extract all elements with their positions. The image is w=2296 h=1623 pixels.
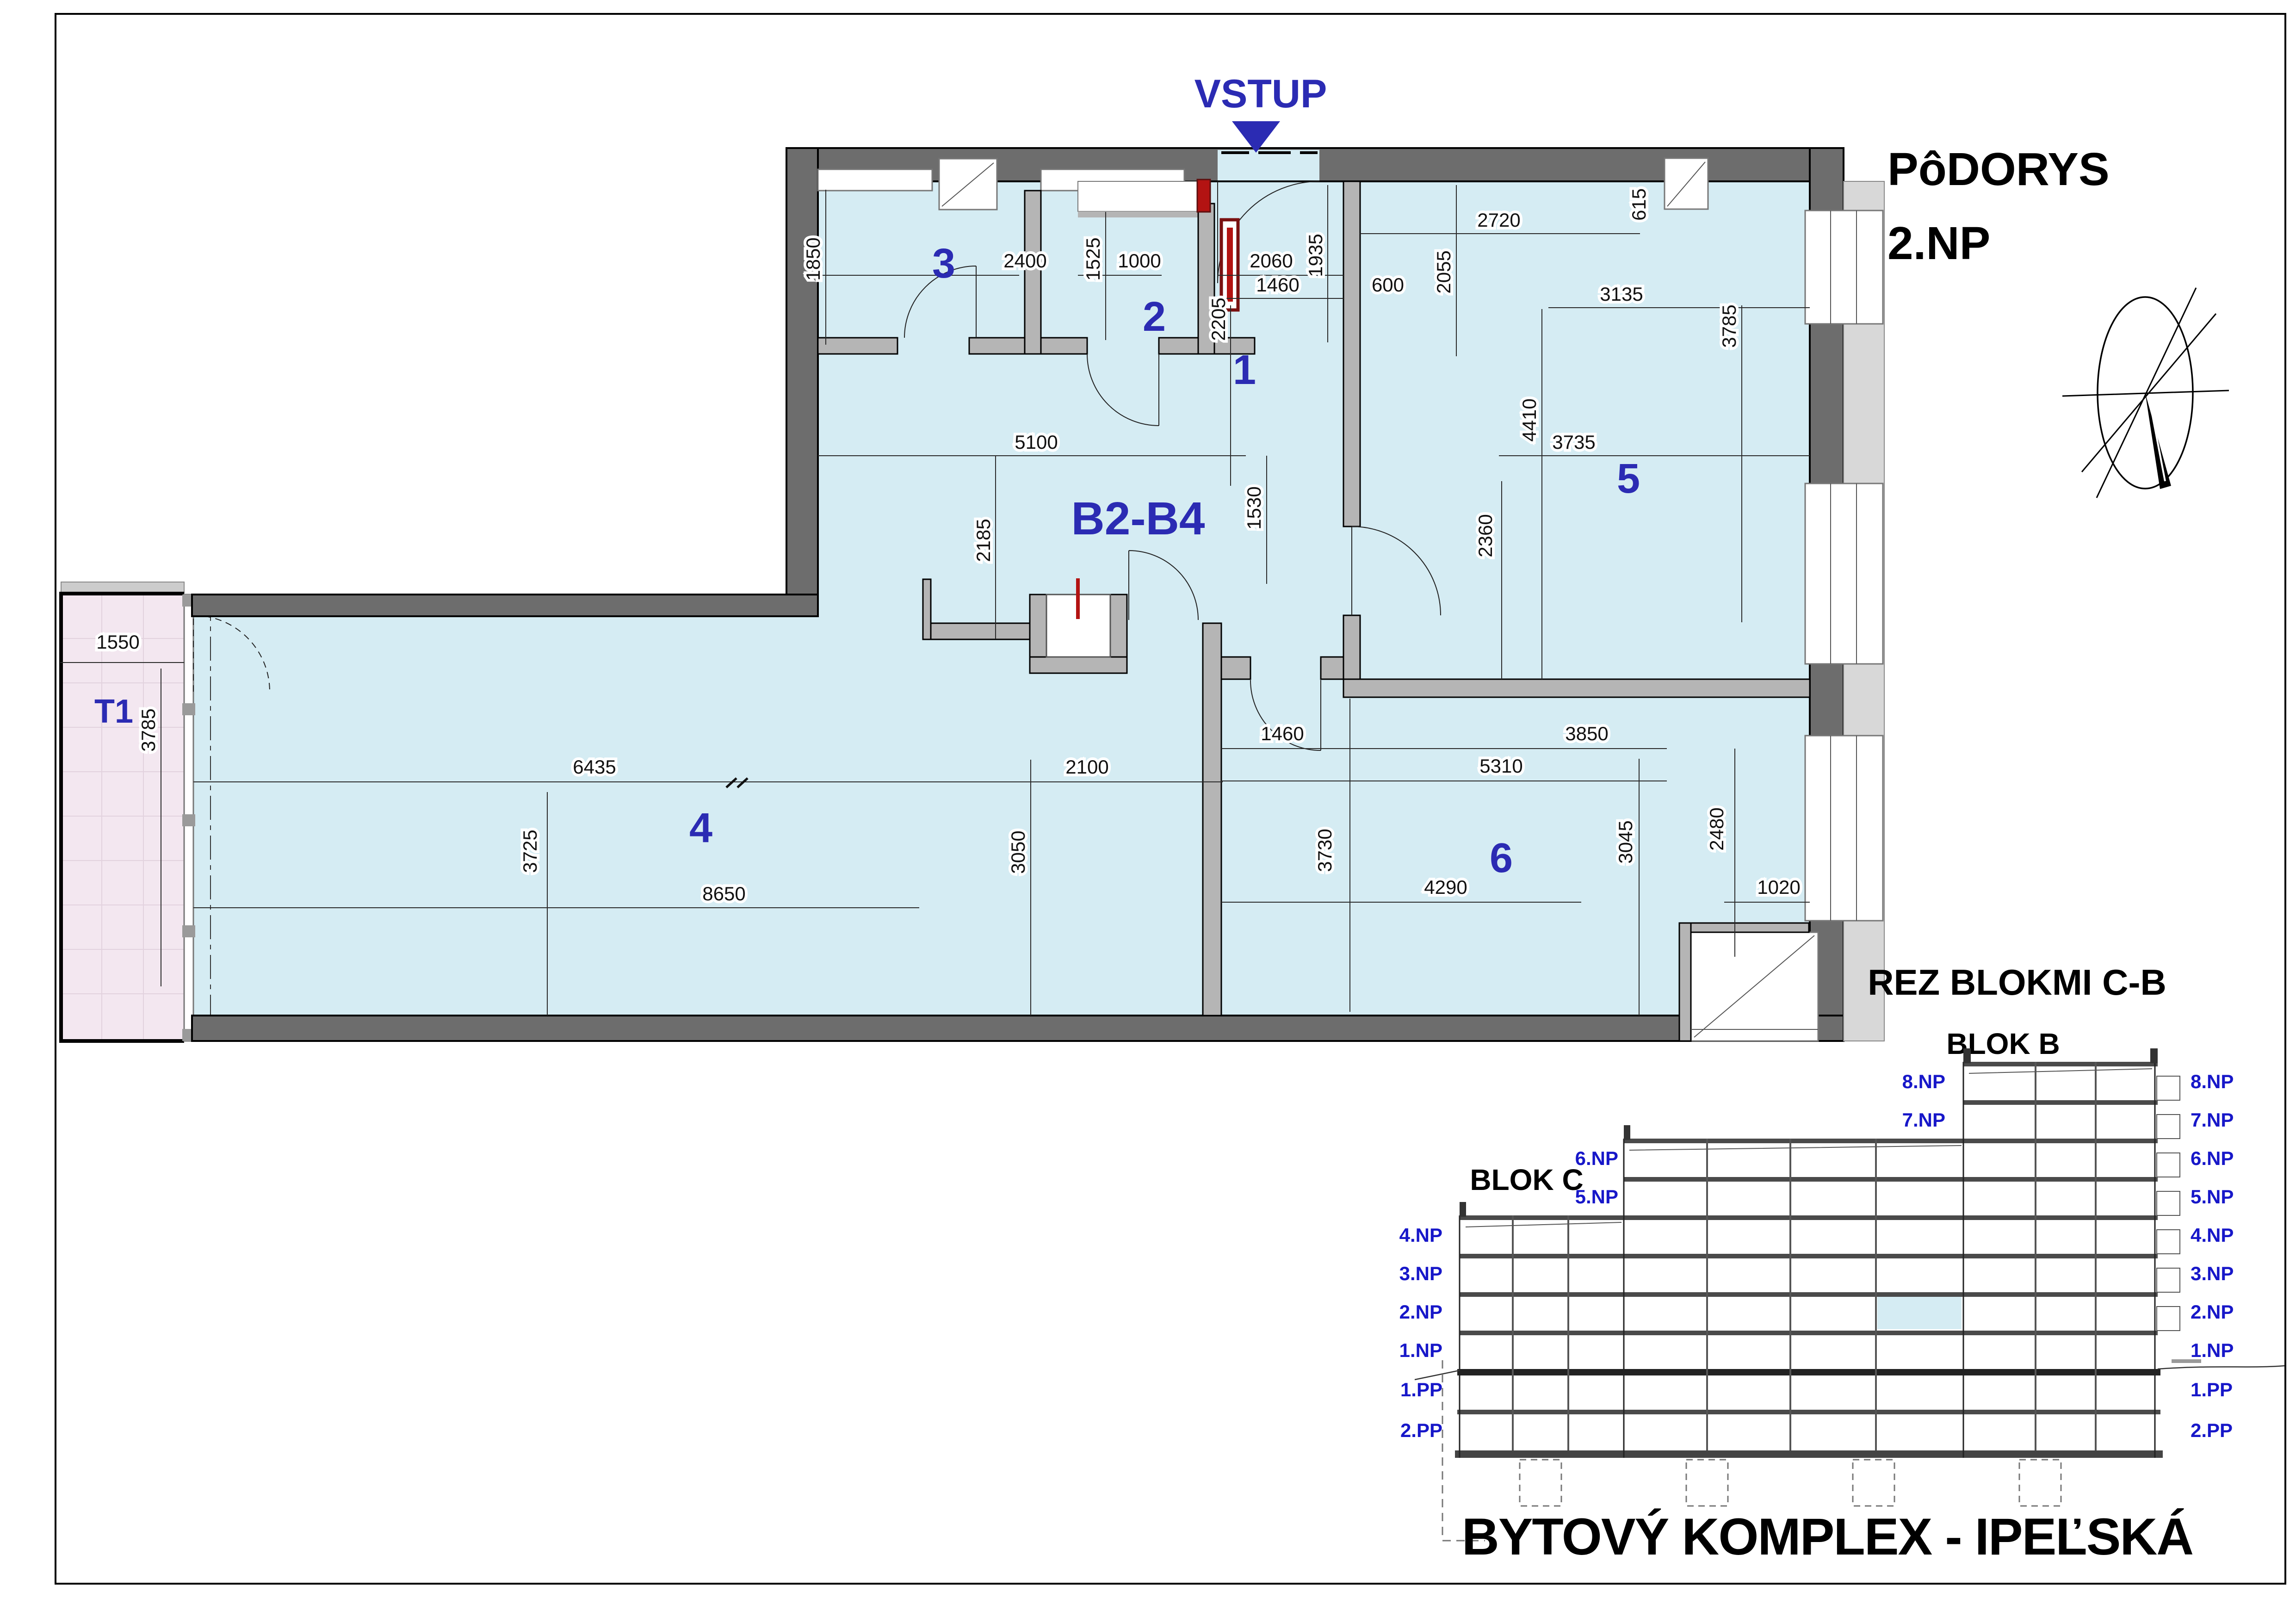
loggia [1679, 923, 1818, 1041]
floor-label-right: 4.NP [2191, 1224, 2234, 1246]
floor-label-blok-b-left: 7.NP [1902, 1109, 1945, 1131]
dimension-label: 1020 [1757, 876, 1800, 898]
drawing-canvas: VSTUP B2-B4 T1 123456 185024001525100020… [0, 0, 2296, 1623]
wc-niche [1078, 181, 1198, 217]
room-number: 5 [1617, 456, 1640, 502]
unit-label: B2-B4 [1071, 493, 1205, 545]
title-line1: PôDORYS [1888, 143, 2110, 195]
room5-south-wall [1343, 679, 1810, 697]
dimension-label: 3050 [1007, 830, 1029, 873]
dimension-label: 3735 [1552, 431, 1595, 453]
section-title: REZ BLOKMI C-B [1868, 962, 2166, 1003]
dimension-label: 2720 [1477, 209, 1520, 231]
dimension-label: 4290 [1424, 876, 1467, 898]
dimension-label: 3730 [1314, 829, 1336, 872]
entrance-label: VSTUP [1194, 72, 1327, 116]
dimension-label: 1460 [1261, 723, 1304, 744]
room-number: 6 [1490, 835, 1513, 881]
dimension-label: 2205 [1207, 297, 1229, 341]
dimension-label: 2100 [1065, 756, 1108, 778]
floor-label-right: 6.NP [2191, 1147, 2234, 1169]
floor-label-right: 5.NP [2191, 1186, 2234, 1208]
terrace-label: T1 [94, 693, 133, 730]
dimension-label: 1935 [1305, 234, 1326, 277]
building-section: REZ BLOKMI C-B BLOK B BLOK C [1399, 962, 2284, 1541]
dimension-label: 3725 [519, 830, 541, 873]
southwest-wall [192, 595, 818, 616]
dimension-label: 2480 [1706, 807, 1727, 850]
dimension-label: 1550 [96, 631, 139, 653]
room-number: 1 [1233, 347, 1256, 393]
dimension-label: 3135 [1600, 283, 1643, 305]
dimension-label: 2185 [972, 519, 994, 562]
compass-rose-icon [2062, 288, 2229, 498]
project-title: BYTOVÝ KOMPLEX - IPEĽSKÁ [1462, 1508, 2193, 1566]
dimension-label: 3850 [1565, 723, 1608, 744]
section-structure [1460, 1048, 2158, 1458]
section-slabs [1455, 1062, 2163, 1458]
dimension-label: 1460 [1256, 274, 1299, 296]
dimension-label: 5100 [1015, 431, 1058, 453]
room-number: 4 [689, 805, 712, 851]
dimension-label: 8650 [702, 883, 745, 904]
dimension-label: 600 [1372, 274, 1404, 296]
dimension-label: 3045 [1615, 820, 1636, 863]
room4-room6-wall [1203, 623, 1221, 1016]
dimension-label: 615 [1628, 188, 1650, 221]
northeast-window [1665, 158, 1708, 209]
dimension-label: 2400 [1003, 250, 1046, 272]
floor-plan: VSTUP B2-B4 T1 123456 185024001525100020… [60, 72, 1884, 1041]
east-windows [1805, 211, 1883, 921]
floor-label-c-left: 1.NP [1399, 1339, 1442, 1361]
dimension-label: 3785 [137, 708, 159, 751]
section-balconies [2157, 1076, 2180, 1331]
dimension-label: 4410 [1518, 398, 1540, 441]
open-casement-window [939, 159, 997, 210]
drawing-title: PôDORYS 2.NP [1888, 143, 2110, 269]
floor-label-c-left: 2.NP [1399, 1301, 1442, 1323]
floor-label-right: 1.PP [2191, 1379, 2233, 1400]
dimension-label: 2360 [1474, 514, 1496, 557]
dimension-label: 3785 [1718, 304, 1740, 347]
dimension-label: 1000 [1118, 250, 1161, 272]
floor-label-right: 2.NP [2191, 1301, 2234, 1323]
floor-label-right: 1.NP [2191, 1339, 2234, 1361]
dimension-label: 2060 [1250, 250, 1293, 272]
dimension-label: 1530 [1243, 486, 1265, 529]
floor-label-mid-left: 5.NP [1575, 1186, 1618, 1208]
highlighted-2np-unit [1877, 1297, 1962, 1329]
room3-window [818, 169, 932, 191]
room-number: 3 [932, 241, 955, 287]
pile-foundations [1520, 1460, 2061, 1506]
dimension-label: 1850 [802, 237, 824, 280]
floor-label-c-left: 4.NP [1399, 1224, 1442, 1246]
dimension-label: 1525 [1082, 237, 1104, 280]
floor-label-c-left: 1.PP [1400, 1379, 1442, 1400]
dimension-label: 5310 [1479, 755, 1522, 777]
south-wall [192, 1016, 1844, 1041]
floor-label-blok-b-left: 8.NP [1902, 1071, 1945, 1092]
floor-label-c-left: 3.NP [1399, 1263, 1442, 1284]
floor-label-right: 3.NP [2191, 1263, 2234, 1284]
floor-label-right: 7.NP [2191, 1109, 2234, 1131]
west-upper-wall [786, 148, 818, 595]
title-line2: 2.NP [1888, 217, 1990, 269]
dimension-label: 6435 [573, 756, 616, 778]
terrace-overhang [61, 582, 184, 593]
room-number: 2 [1143, 294, 1166, 340]
entrance-marker: VSTUP [1194, 72, 1327, 153]
floor-label-right: 2.PP [2191, 1419, 2233, 1441]
blok-c-label: BLOK C [1470, 1163, 1583, 1196]
floor-label-right: 8.NP [2191, 1071, 2234, 1092]
floor-label-c-left: 2.PP [1400, 1419, 1442, 1441]
dimension-label: 2055 [1433, 250, 1454, 293]
floor-label-mid-left: 6.NP [1575, 1147, 1618, 1169]
